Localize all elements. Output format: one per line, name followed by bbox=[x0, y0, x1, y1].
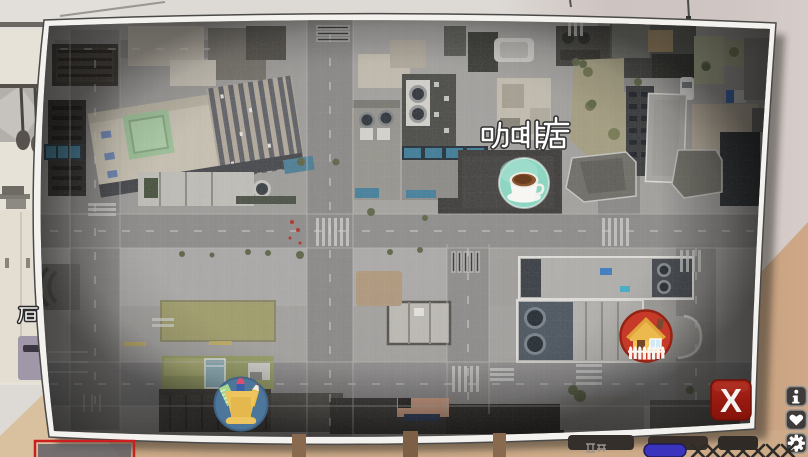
svg-text:X: X bbox=[720, 382, 742, 419]
